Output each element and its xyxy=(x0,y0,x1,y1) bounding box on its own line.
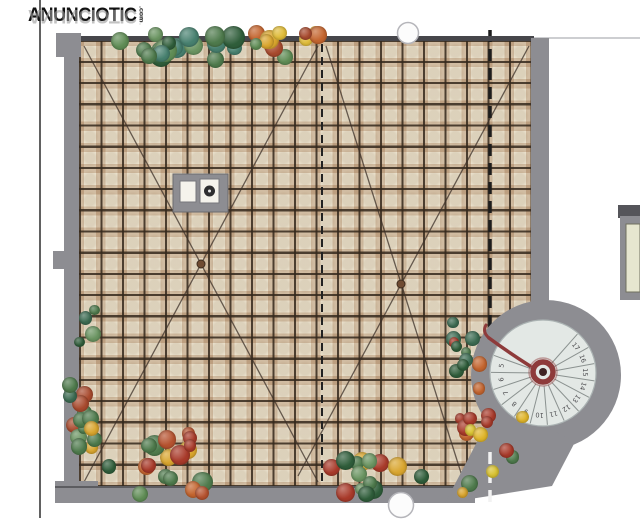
plan-svg: 171615141312111098765 xyxy=(0,0,640,523)
stair-step-number: 10 xyxy=(535,411,544,420)
vent-circle-top xyxy=(398,23,419,44)
equipment-fan-center xyxy=(208,190,211,193)
left-wall-bump xyxy=(53,251,65,269)
watermark-reflection-suffix: .com xyxy=(138,8,145,25)
slope-diagonals xyxy=(84,46,529,482)
equipment-pad xyxy=(173,174,228,212)
stair-hub-center xyxy=(539,368,547,376)
watermark: ANUNCIOTIC.com ANUNCIOTIC.com xyxy=(28,6,150,25)
top-wall-faint-extension xyxy=(534,37,640,39)
left-wall xyxy=(64,36,79,492)
side-planter-inner xyxy=(626,224,640,292)
top-wall xyxy=(58,36,534,41)
watermark-reflection-word: ANUNCIOTIC xyxy=(28,5,137,26)
right-wall xyxy=(531,38,549,345)
stair-step-number: 15 xyxy=(581,368,589,376)
diagonal-x2-a xyxy=(326,46,462,476)
side-planter xyxy=(618,205,640,300)
equipment-box xyxy=(180,181,196,202)
walls xyxy=(53,33,640,503)
watermark-reflection: ANUNCIOTIC.com xyxy=(28,6,144,25)
drain-knot-2 xyxy=(397,280,405,288)
drain-knot-1 xyxy=(197,260,205,268)
vent-circle-bottom xyxy=(389,493,414,518)
